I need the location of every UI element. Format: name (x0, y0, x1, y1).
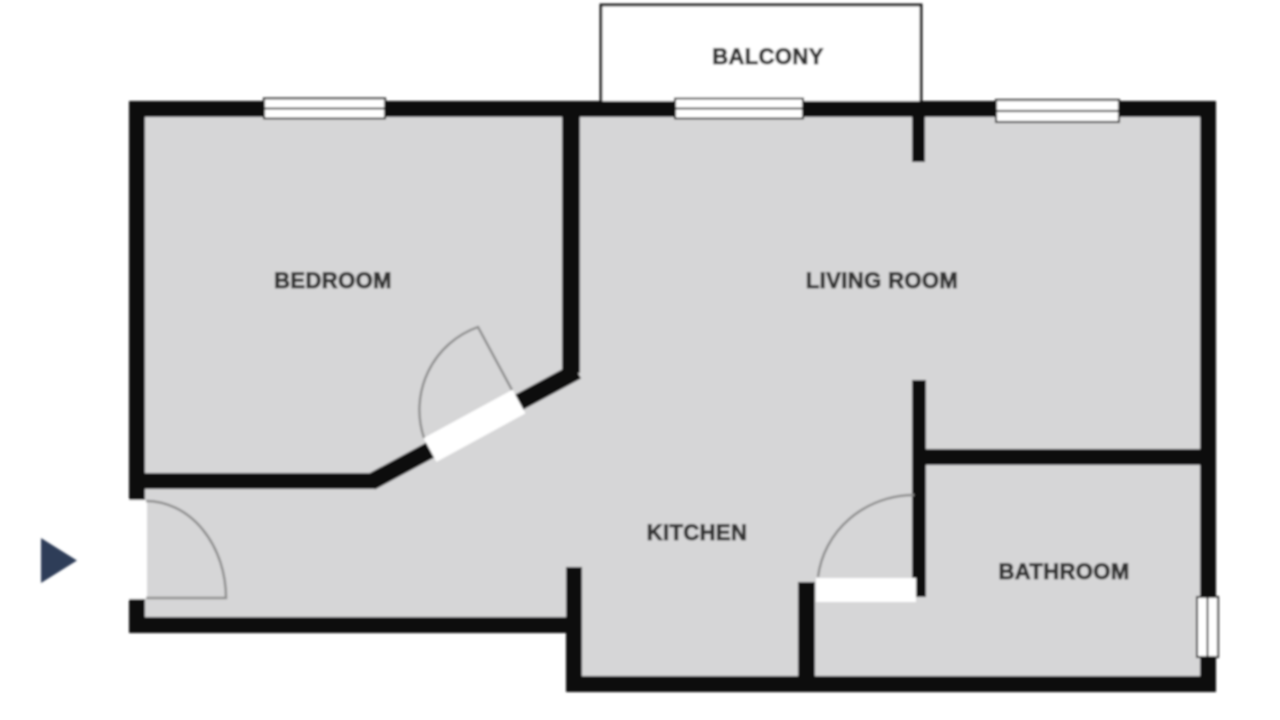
svg-text:LIVING ROOM: LIVING ROOM (806, 268, 958, 293)
svg-text:KITCHEN: KITCHEN (647, 520, 748, 545)
svg-text:BEDROOM: BEDROOM (274, 268, 392, 293)
svg-text:BALCONY: BALCONY (712, 44, 824, 69)
svg-text:BATHROOM: BATHROOM (998, 559, 1129, 584)
